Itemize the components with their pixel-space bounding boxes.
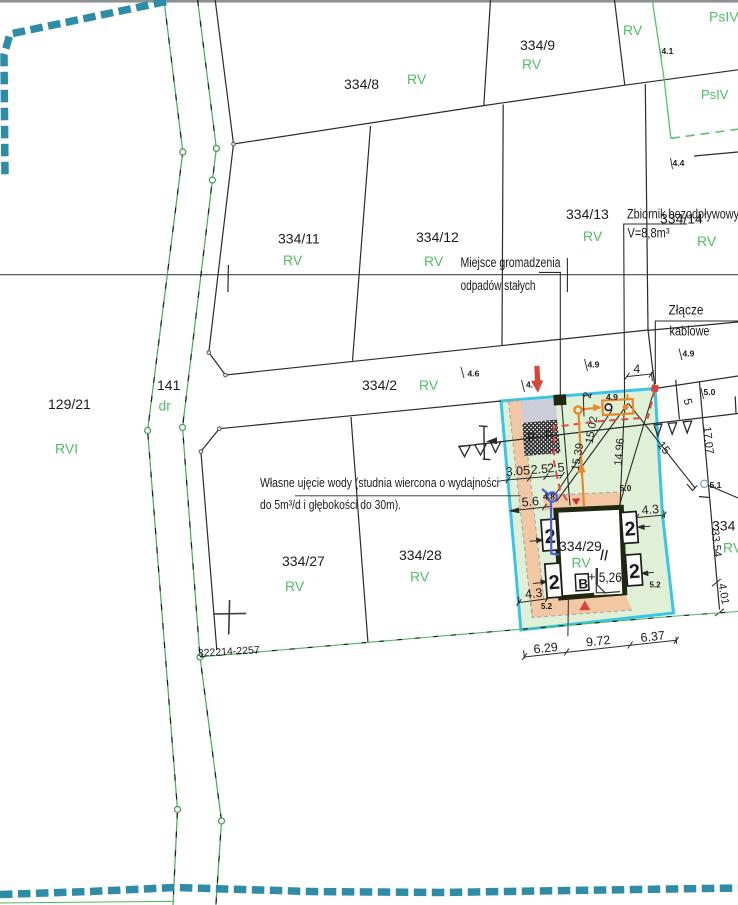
svg-text:RV: RV xyxy=(419,377,439,393)
svg-text:RV: RV xyxy=(407,71,427,87)
svg-text:RV: RV xyxy=(583,228,603,244)
svg-text:RV: RV xyxy=(522,56,542,72)
svg-text:4.3: 4.3 xyxy=(524,586,543,602)
svg-text:5.0: 5.0 xyxy=(620,483,632,493)
svg-text:4.6: 4.6 xyxy=(468,369,480,379)
svg-text:141: 141 xyxy=(157,377,181,393)
svg-text:6.37: 6.37 xyxy=(640,629,666,645)
svg-text:334/9: 334/9 xyxy=(520,37,555,53)
svg-text:2: 2 xyxy=(548,572,561,595)
svg-text:334/8: 334/8 xyxy=(344,76,379,92)
svg-text:RVI: RVI xyxy=(55,441,78,457)
svg-text:4.9: 4.9 xyxy=(588,360,600,370)
svg-text:RV: RV xyxy=(697,233,717,249)
svg-text:5.2: 5.2 xyxy=(650,581,662,590)
svg-text:129/21: 129/21 xyxy=(48,396,91,412)
svg-text:4.1: 4.1 xyxy=(662,46,674,56)
svg-text:5.6: 5.6 xyxy=(521,494,540,509)
svg-text:4.: 4. xyxy=(526,380,533,390)
svg-text:6.29: 6.29 xyxy=(533,640,559,656)
svg-text:+: + xyxy=(588,569,596,584)
svg-text:Miejsce gromadzenia: Miejsce gromadzenia xyxy=(461,255,561,270)
svg-text:PsIV: PsIV xyxy=(709,9,738,25)
svg-text:2.5: 2.5 xyxy=(530,462,548,477)
svg-text:14.96: 14.96 xyxy=(613,438,627,466)
svg-text:4.9: 4.9 xyxy=(606,392,618,402)
svg-text:334/2: 334/2 xyxy=(362,377,397,393)
svg-text:2: 2 xyxy=(628,561,641,584)
svg-text:334/29: 334/29 xyxy=(559,538,602,554)
svg-text:RV: RV xyxy=(623,22,643,38)
svg-text:4.3: 4.3 xyxy=(641,502,660,517)
svg-text:4: 4 xyxy=(634,362,641,376)
svg-text:334/28: 334/28 xyxy=(399,547,442,563)
svg-text:4.4: 4.4 xyxy=(673,158,685,168)
svg-text:334/11: 334/11 xyxy=(278,231,320,247)
svg-text:RV: RV xyxy=(283,252,303,268)
svg-text:5,26: 5,26 xyxy=(599,569,622,585)
svg-text:5.0: 5.0 xyxy=(704,387,716,397)
svg-text:RV: RV xyxy=(723,540,738,556)
svg-text:dr: dr xyxy=(159,398,172,414)
svg-text:5.2: 5.2 xyxy=(541,602,553,611)
svg-text:kablowe: kablowe xyxy=(670,324,710,339)
svg-text:334/27: 334/27 xyxy=(282,553,325,569)
svg-text:4.8: 4.8 xyxy=(543,492,555,502)
svg-text:do 5m³/d i głębokości do 30m).: do 5m³/d i głębokości do 30m). xyxy=(260,497,401,512)
svg-text:Własne ujęcie wody (studnia wi: Własne ujęcie wody (studnia wiercona o w… xyxy=(260,475,499,490)
svg-text:2: 2 xyxy=(624,518,637,541)
svg-text:Złącze: Złącze xyxy=(669,303,704,318)
svg-text:RV: RV xyxy=(424,253,444,269)
svg-text:P - P: P - P xyxy=(527,427,553,445)
svg-text:PsIV: PsIV xyxy=(701,87,729,102)
svg-text:Zbiornik bezodpływowy: Zbiornik bezodpływowy xyxy=(627,207,738,222)
svg-text:3.05: 3.05 xyxy=(505,463,530,479)
svg-text:RV: RV xyxy=(285,578,305,594)
svg-text:334/12: 334/12 xyxy=(416,229,459,245)
svg-text:5.1: 5.1 xyxy=(710,480,722,490)
svg-text:4.9: 4.9 xyxy=(683,349,695,359)
svg-text:9.72: 9.72 xyxy=(585,633,611,649)
svg-text:334/13: 334/13 xyxy=(566,206,609,222)
svg-text:V=8,8m³: V=8,8m³ xyxy=(628,226,670,241)
svg-text:RV: RV xyxy=(410,569,430,585)
svg-text:odpadów stałych: odpadów stałych xyxy=(461,278,536,293)
svg-text:2.5: 2.5 xyxy=(547,460,565,475)
